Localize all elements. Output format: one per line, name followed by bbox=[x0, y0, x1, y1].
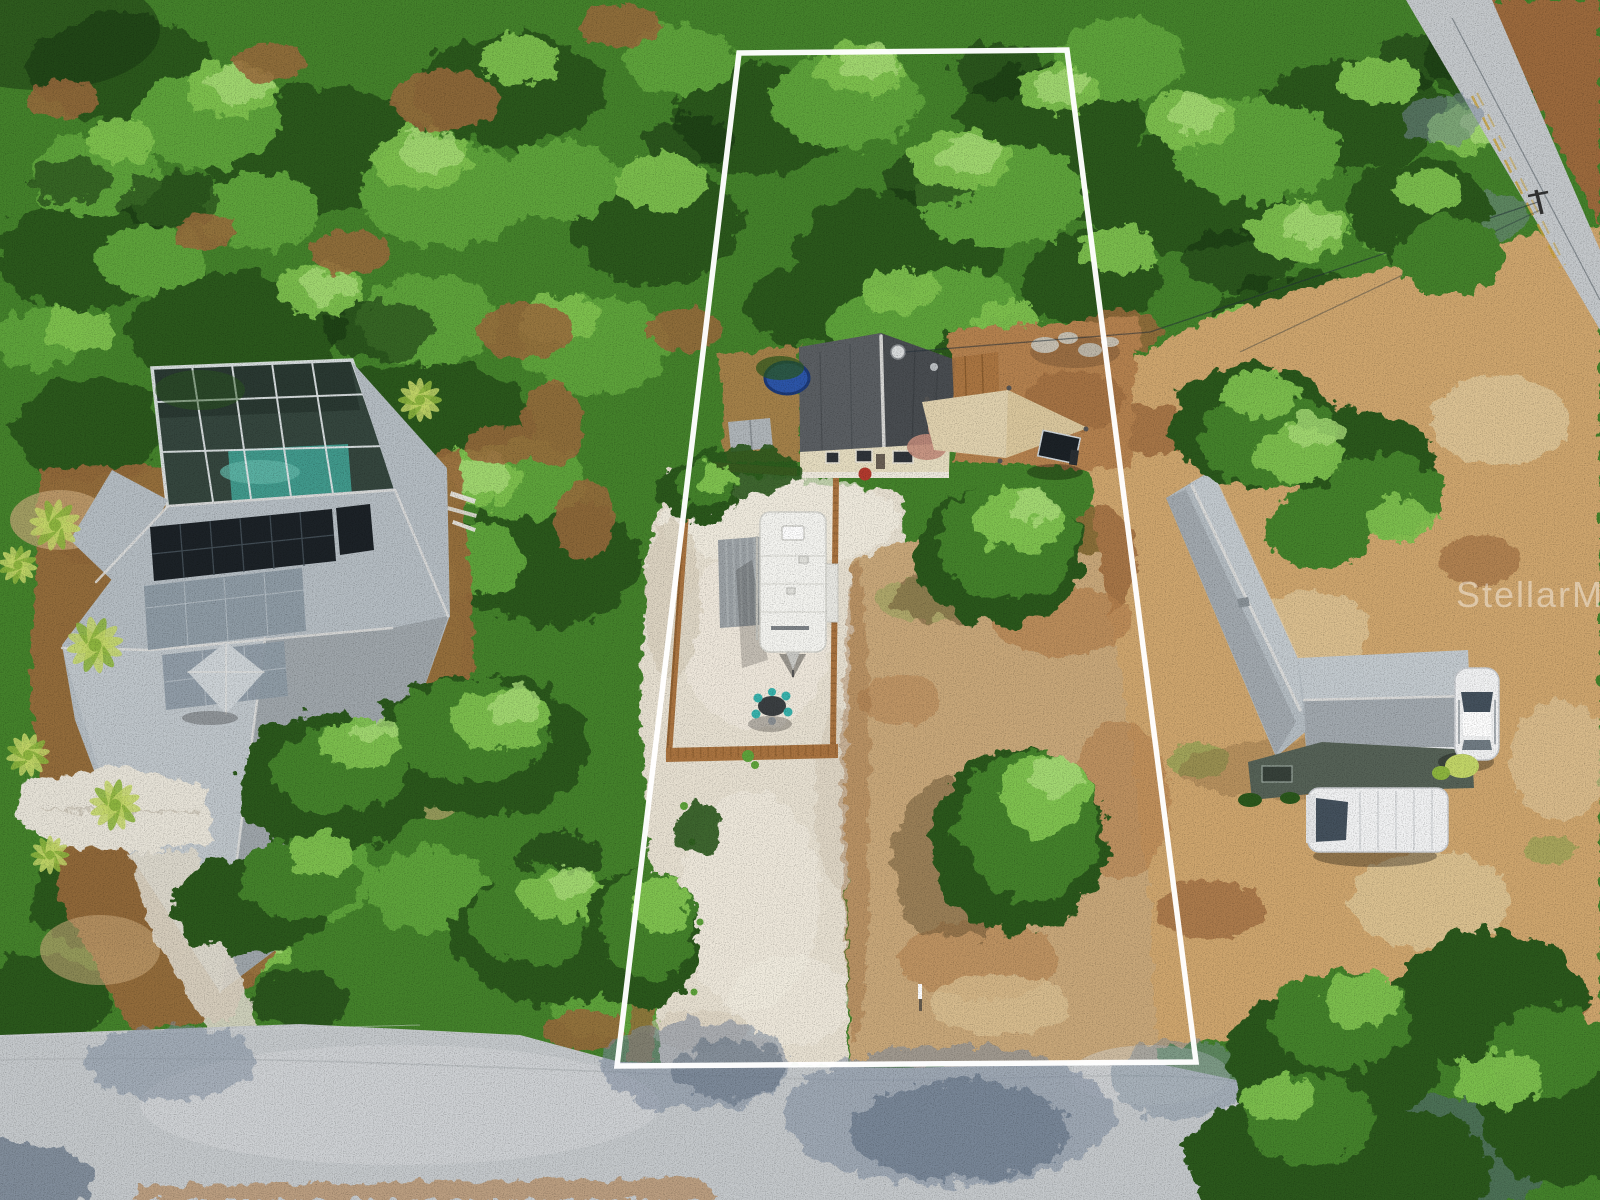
scene-svg bbox=[0, 0, 1600, 1200]
aerial-property-photo: StellarMLS bbox=[0, 0, 1600, 1200]
photo-grain bbox=[0, 0, 1600, 1200]
